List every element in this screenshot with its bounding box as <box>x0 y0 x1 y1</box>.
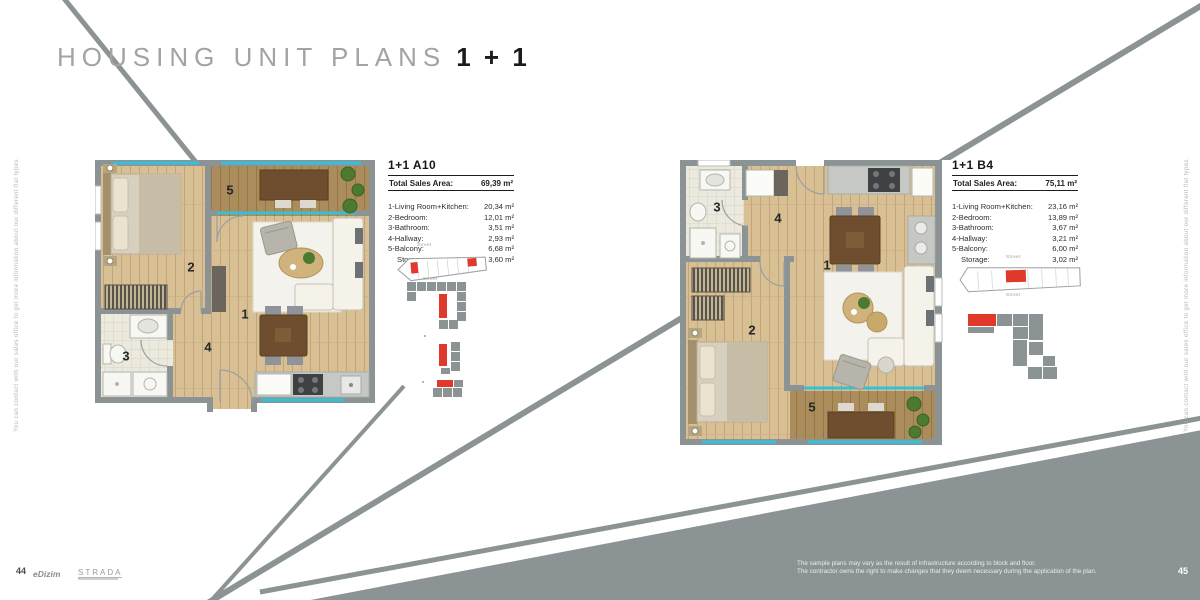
table-row: 3-Bathroom:3,51 m² <box>388 223 514 234</box>
dresser <box>692 296 724 320</box>
diagonal-line-top-left <box>62 0 199 166</box>
key-block-cluster-c <box>433 380 463 397</box>
storage-cabinet <box>212 266 226 312</box>
key-plan-a10: ​ <box>393 246 489 398</box>
room-number-bathroom: 3 <box>713 200 720 215</box>
room-number-balcony: 5 <box>808 400 815 415</box>
side-note-left: You can contact with our sales office to… <box>14 202 20 432</box>
dining-table <box>830 207 880 274</box>
side-note-right: You can contact with our sales office to… <box>1184 202 1190 432</box>
room-number-balcony: 5 <box>226 183 233 198</box>
page-title: HOUSING UNIT PLANS1 + 1 <box>57 42 530 73</box>
room-number-bedroom: 2 <box>187 260 194 275</box>
kitchen-counter <box>255 372 369 397</box>
total-label: Total Sales Area: <box>953 179 1017 188</box>
table-row: 4-Hallway:3,21 m² <box>952 234 1078 245</box>
radiator <box>105 285 167 309</box>
street-label-top: Street <box>417 242 432 247</box>
total-sales-area-row: Total Sales Area: 75,11 m² <box>952 175 1078 191</box>
floor-plan-b4: 1 2 3 4 5 <box>680 160 952 455</box>
page-title-suffix: 1 + 1 <box>456 42 530 72</box>
table-row: 1-Living Room+Kitchen:20,34 m² <box>388 202 514 213</box>
side-table <box>878 357 894 373</box>
brochure-page: HOUSING UNIT PLANS1 + 1 <box>0 0 1200 600</box>
strada-logo-subtext <box>78 578 118 580</box>
table-row: 3-Bathroom:3,67 m² <box>952 223 1078 234</box>
room-number-living: 1 <box>823 258 830 273</box>
dining-table <box>260 306 307 365</box>
coffee-table <box>279 248 323 278</box>
disclaimer: The sample plans may vary as the result … <box>797 560 1200 576</box>
table-row: 1-Living Room+Kitchen:23,16 m² <box>952 202 1078 213</box>
closet <box>746 170 774 196</box>
radiator <box>692 268 750 292</box>
hallway-floor <box>173 312 209 397</box>
street-label-bottom: Street <box>423 276 438 281</box>
bed <box>103 164 181 266</box>
table-row: 2-Bedroom:13,89 m² <box>952 213 1078 224</box>
floor-plan-a10: 1 2 3 4 5 <box>95 160 375 412</box>
floor-plan-a10-rendering <box>95 160 375 412</box>
floor-plan-b4-rendering <box>680 160 952 455</box>
total-label: Total Sales Area: <box>389 179 453 188</box>
room-number-hallway: 4 <box>204 340 211 355</box>
disclaimer-line-1: The sample plans may vary as the result … <box>797 560 1200 568</box>
page-number-left: 44 <box>16 566 26 576</box>
site-plan <box>960 264 1081 292</box>
room-number-living: 1 <box>241 307 248 322</box>
bed <box>688 328 767 436</box>
storage-cabinet <box>774 170 788 196</box>
page-title-text: HOUSING UNIT PLANS <box>57 42 446 72</box>
disclaimer-line-2: The contractor owns the right to make ch… <box>797 568 1200 576</box>
street-label-top: Street <box>1006 254 1021 259</box>
key-plan-b4: Street Street <box>958 252 1090 384</box>
site-plan <box>397 252 487 282</box>
spec-table-b4: 1+1 B4 Total Sales Area: 75,11 m² 1-Livi… <box>952 158 1078 266</box>
total-value: 69,39 m² <box>481 179 513 188</box>
room-number-hallway: 4 <box>774 211 781 226</box>
table-row: 4-Hallway:2,93 m² <box>388 234 514 245</box>
plan-name: 1+1 B4 <box>952 158 1078 172</box>
total-value: 75,11 m² <box>1045 179 1077 188</box>
room-number-bedroom: 2 <box>748 323 755 338</box>
key-block-cluster-a <box>407 282 466 329</box>
total-sales-area-row: Total Sales Area: 69,39 m² <box>388 175 514 191</box>
diagonal-line-short <box>208 386 404 600</box>
street-label-bottom: Street <box>1006 292 1021 297</box>
edizim-logo: eDizim <box>33 569 60 579</box>
table-row: 2-Bedroom:12,01 m² <box>388 213 514 224</box>
room-number-bathroom: 3 <box>122 349 129 364</box>
strada-logo: STRADA <box>78 568 122 578</box>
plan-name: 1+1 A10 <box>388 158 514 172</box>
key-block-cluster <box>968 314 1057 379</box>
page-number-right: 45 <box>1178 566 1188 576</box>
key-block-cluster-b <box>439 342 460 374</box>
